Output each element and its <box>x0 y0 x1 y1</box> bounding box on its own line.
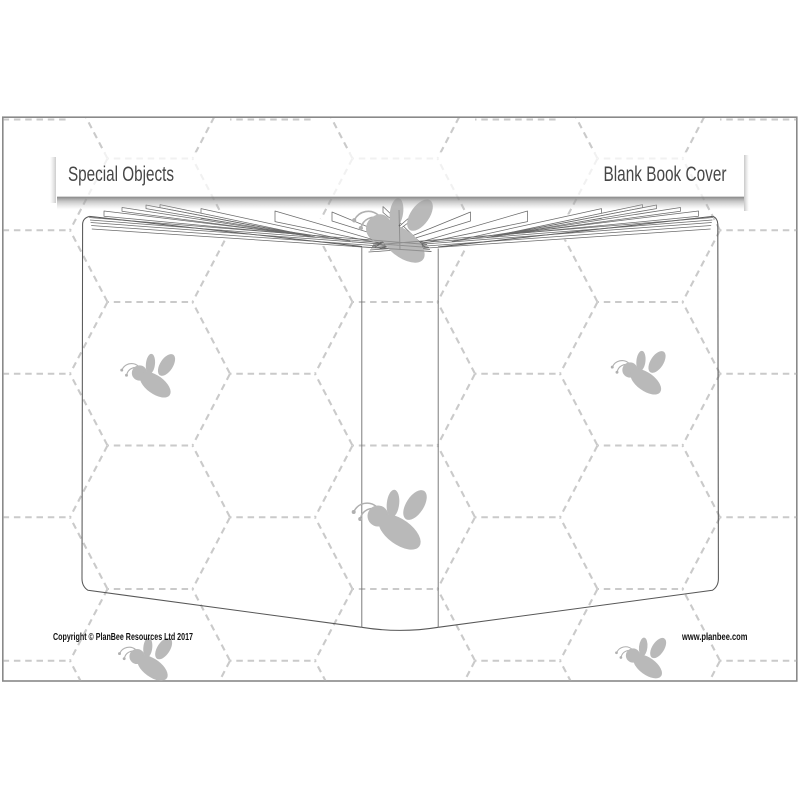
svg-text:Special Objects: Special Objects <box>68 163 174 186</box>
svg-text:www.planbee.com: www.planbee.com <box>681 632 747 643</box>
svg-text:Copyright © PlanBee Resources: Copyright © PlanBee Resources Ltd 2017 <box>53 632 193 643</box>
svg-text:Blank Book Cover: Blank Book Cover <box>604 163 727 186</box>
